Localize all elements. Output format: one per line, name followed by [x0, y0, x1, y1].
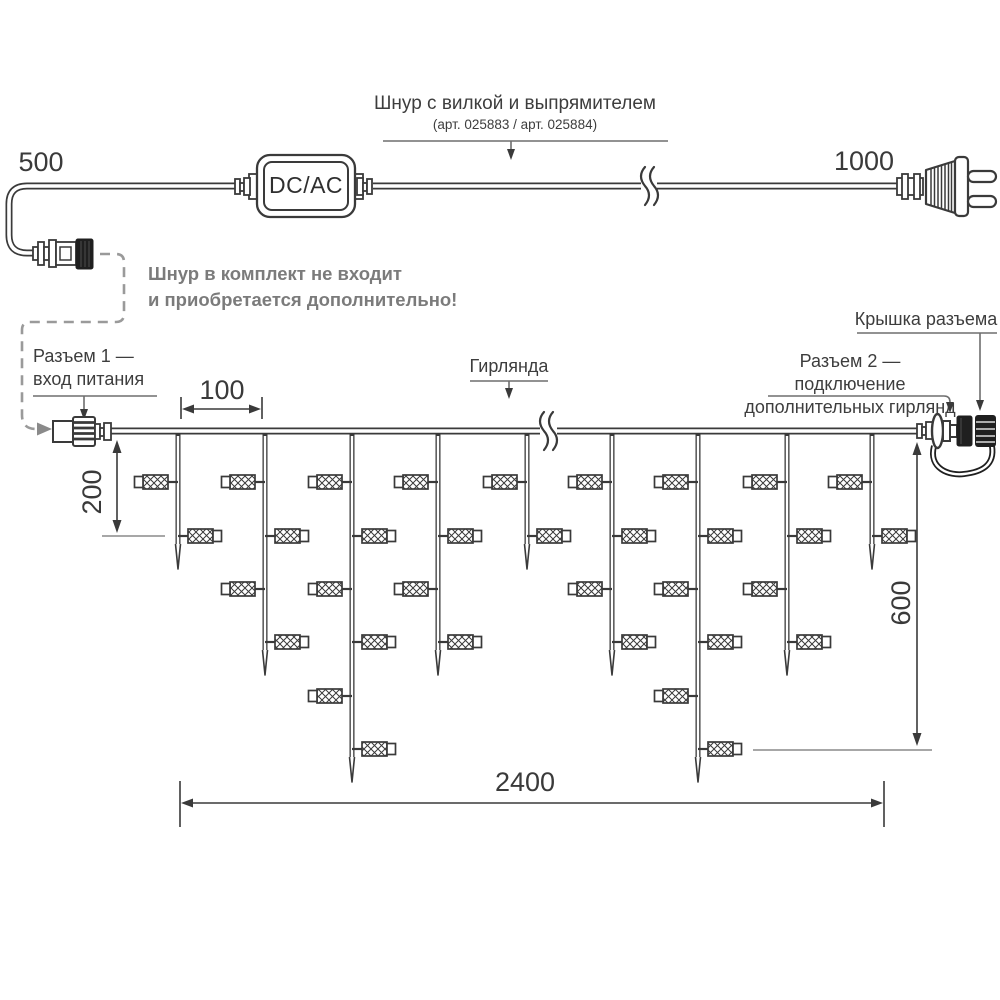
lamp-body — [752, 475, 777, 489]
dim-100-label: 100 — [190, 375, 254, 406]
dim-1000-label: 1000 — [824, 146, 904, 177]
lamp-body — [317, 689, 342, 703]
dim-2400-label: 2400 — [475, 767, 575, 798]
lamp-cap — [387, 637, 396, 648]
lamp-body — [448, 635, 473, 649]
lamp-cap — [222, 584, 231, 595]
lamp-body — [403, 475, 428, 489]
lamp-body — [275, 635, 300, 649]
lamp-cap — [822, 531, 831, 542]
lamp-body — [317, 582, 342, 596]
garland-label: Гирлянда — [454, 356, 564, 377]
dim-600-label: 600 — [886, 553, 916, 653]
strand-tip — [696, 757, 701, 782]
lamp-body — [708, 635, 733, 649]
strand-tip — [176, 544, 181, 569]
lamp-cap — [309, 477, 318, 488]
lamp-body — [752, 582, 777, 596]
cord-note: Шнур в комплект не входит и приобретаетс… — [148, 261, 478, 313]
cord-break-icon — [641, 167, 658, 205]
lamp-cap — [300, 531, 309, 542]
lamp-cap — [907, 531, 916, 542]
lamp-cap — [647, 637, 656, 648]
cord-subtitle: (арт. 025883 / арт. 025884) — [330, 116, 700, 133]
lamp-body — [577, 582, 602, 596]
dim-500-label: 500 — [6, 147, 76, 178]
power-connector — [33, 239, 93, 269]
lamp-body — [317, 475, 342, 489]
lamp-body — [403, 582, 428, 596]
lamp-cap — [647, 531, 656, 542]
lamp-cap — [655, 691, 664, 702]
lamp-cap — [395, 584, 404, 595]
connector2-label-line2: дополнительных гирлянд — [742, 396, 958, 419]
lamp-body — [143, 475, 168, 489]
lamp-cap — [733, 531, 742, 542]
strand-tip — [525, 544, 530, 569]
connector2 — [917, 414, 972, 448]
lamp-cap — [484, 477, 493, 488]
strand-tip — [350, 757, 355, 782]
strand-tip — [263, 650, 268, 675]
cord-title-block: Шнур с вилкой и выпрямителем (арт. 02588… — [330, 92, 700, 133]
lamp-body — [622, 635, 647, 649]
dashed-route-arrow — [37, 423, 52, 436]
lamp-body — [537, 529, 562, 543]
dcac-left-connector-icon — [235, 178, 250, 195]
lamp-body — [622, 529, 647, 543]
lamp-cap — [733, 744, 742, 755]
lamp-body — [448, 529, 473, 543]
strand-tip — [870, 544, 875, 569]
lamp-body — [797, 529, 822, 543]
lamp-cap — [473, 637, 482, 648]
connector1-label-line1: Разъем 1 — — [33, 345, 193, 368]
lamp-body — [663, 475, 688, 489]
lamp-cap — [733, 637, 742, 648]
lamp-body — [708, 529, 733, 543]
lamp-cap — [309, 584, 318, 595]
lamp-cap — [822, 637, 831, 648]
lamp-body — [362, 635, 387, 649]
lamp-body — [577, 475, 602, 489]
strand-tip — [436, 650, 441, 675]
lamp-body — [663, 582, 688, 596]
lamp-cap — [744, 477, 753, 488]
lamp-body — [230, 582, 255, 596]
power-cord — [9, 167, 897, 253]
lamp-cap — [300, 637, 309, 648]
lamp-cap — [387, 531, 396, 542]
lamp-body — [362, 742, 387, 756]
product-diagram: Шнур с вилкой и выпрямителем (арт. 02588… — [0, 0, 1000, 1000]
loop-cable — [933, 446, 992, 474]
connector1-label: Разъем 1 — вход питания — [33, 345, 193, 391]
lamp-cap — [829, 477, 838, 488]
lamp-cap — [222, 477, 231, 488]
lamp-cap — [655, 584, 664, 595]
dcac-right-connector-icon — [357, 178, 372, 195]
connector1-label-line2: вход питания — [33, 368, 193, 391]
cord-note-line1: Шнур в комплект не входит — [148, 261, 478, 287]
wire-break-icon — [540, 412, 557, 450]
dim-200-label: 200 — [77, 442, 107, 542]
lamp-cap — [395, 477, 404, 488]
lamp-body — [188, 529, 213, 543]
power-plug — [897, 157, 996, 216]
plug-hatch — [931, 162, 952, 212]
connector2-label: Разъем 2 — подключение дополнительных ги… — [742, 350, 958, 419]
lamp-cap — [744, 584, 753, 595]
converter-label: DC/AC — [262, 172, 350, 199]
lamp-body — [708, 742, 733, 756]
lamp-body — [663, 689, 688, 703]
lamp-body — [797, 635, 822, 649]
lamp-body — [275, 529, 300, 543]
lamp-cap — [569, 584, 578, 595]
lamp-cap — [135, 477, 144, 488]
connector2-label-line1: Разъем 2 — подключение — [742, 350, 958, 396]
strand-tip — [610, 650, 615, 675]
icicle-strands — [135, 434, 916, 783]
lamp-cap — [562, 531, 571, 542]
lamp-body — [362, 529, 387, 543]
lamp-cap — [387, 744, 396, 755]
cord-title: Шнур с вилкой и выпрямителем — [330, 92, 700, 116]
lamp-cap — [473, 531, 482, 542]
cord-note-line2: и приобретается дополнительно! — [148, 287, 478, 313]
lamp-body — [882, 529, 907, 543]
cap-label: Крышка разъема — [853, 309, 999, 330]
lamp-body — [837, 475, 862, 489]
lamp-cap — [309, 691, 318, 702]
connector-cap — [975, 415, 996, 447]
lamp-cap — [213, 531, 222, 542]
strand-tip — [785, 650, 790, 675]
lamp-cap — [655, 477, 664, 488]
lamp-cap — [569, 477, 578, 488]
lamp-body — [492, 475, 517, 489]
lamp-body — [230, 475, 255, 489]
